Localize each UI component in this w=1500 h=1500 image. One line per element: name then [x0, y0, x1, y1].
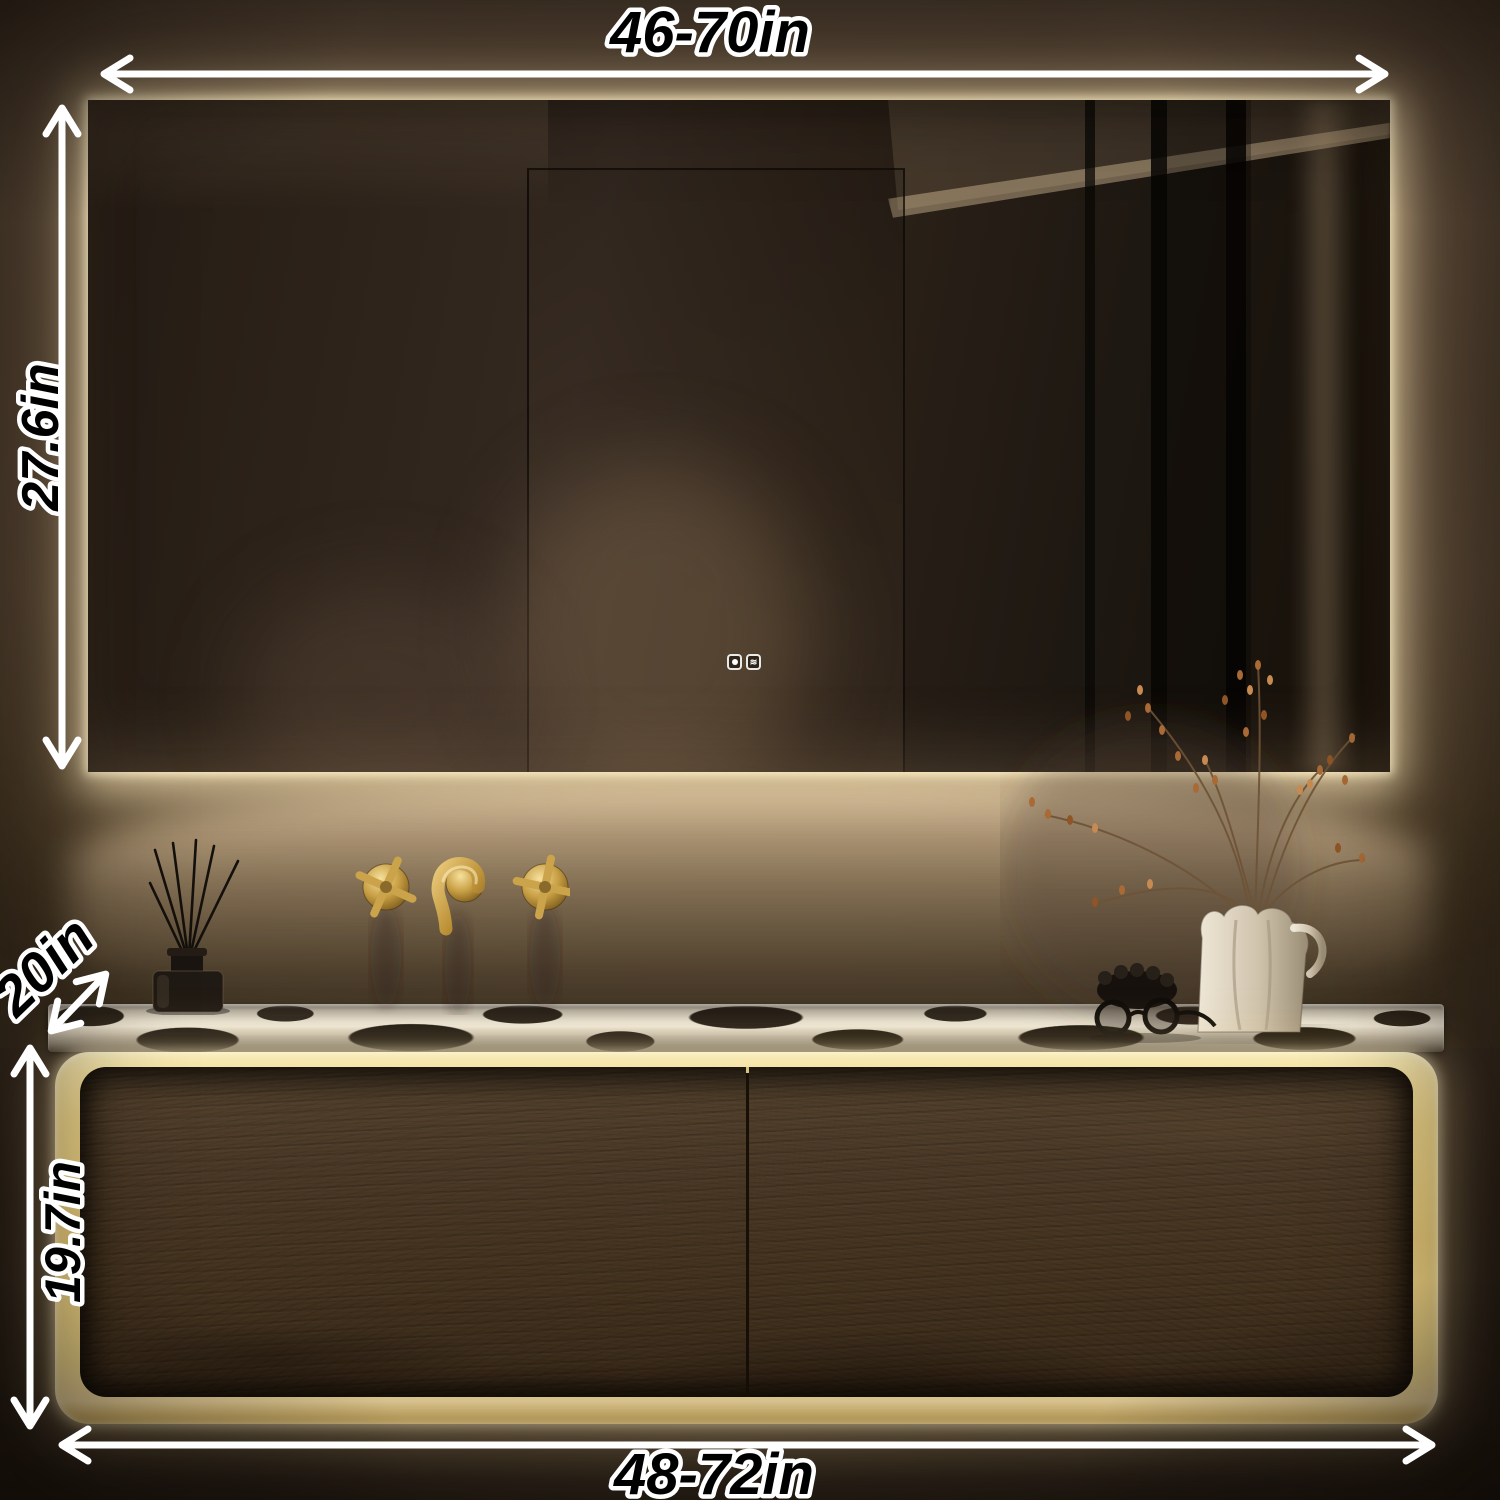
light-power-icon [727, 654, 742, 670]
drawer-divider [746, 1067, 749, 1397]
mirror-shading [88, 100, 1390, 772]
floating-vanity-lit-frame [55, 1052, 1438, 1424]
vanity-drawers-wood [80, 1067, 1413, 1397]
defog-icon: ≋ [746, 654, 761, 670]
product-photo: ≋ [0, 0, 1500, 1500]
mirror-underglow-on-wall [70, 778, 1430, 1028]
led-mirror: ≋ [88, 100, 1390, 772]
marble-countertop [48, 1004, 1444, 1052]
